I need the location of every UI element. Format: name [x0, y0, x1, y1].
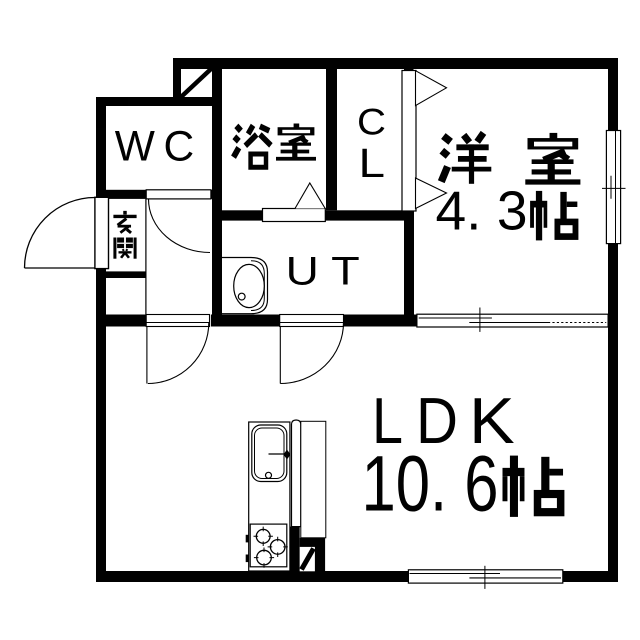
svg-text:C: C [357, 101, 386, 142]
svg-text:10. 6: 10. 6 [362, 439, 499, 528]
svg-text:L: L [359, 140, 386, 186]
svg-text:T: T [331, 250, 360, 294]
svg-text:4. 3: 4. 3 [436, 180, 528, 242]
svg-text:W: W [115, 124, 155, 171]
svg-text:C: C [164, 124, 195, 171]
svg-text:U: U [286, 250, 319, 294]
